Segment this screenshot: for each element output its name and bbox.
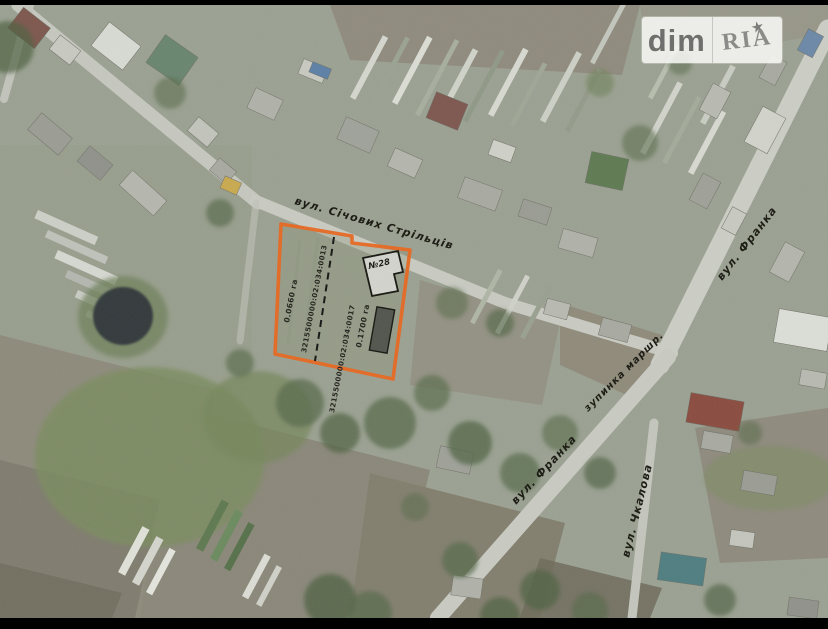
dim-logo-cell: dim xyxy=(642,17,713,63)
ria-logo-cell: ★ RIA xyxy=(713,17,783,63)
photo-grain-overlay xyxy=(0,5,828,618)
screenshot-frame: вул. Січових Стрільців вул. Франка вул. … xyxy=(0,0,828,629)
ria-logo-text: RIA xyxy=(721,25,774,55)
dim-logo-text: dim xyxy=(648,25,706,56)
dimria-watermark: dim ★ RIA xyxy=(642,17,782,63)
aerial-photo: вул. Січових Стрільців вул. Франка вул. … xyxy=(0,5,828,618)
